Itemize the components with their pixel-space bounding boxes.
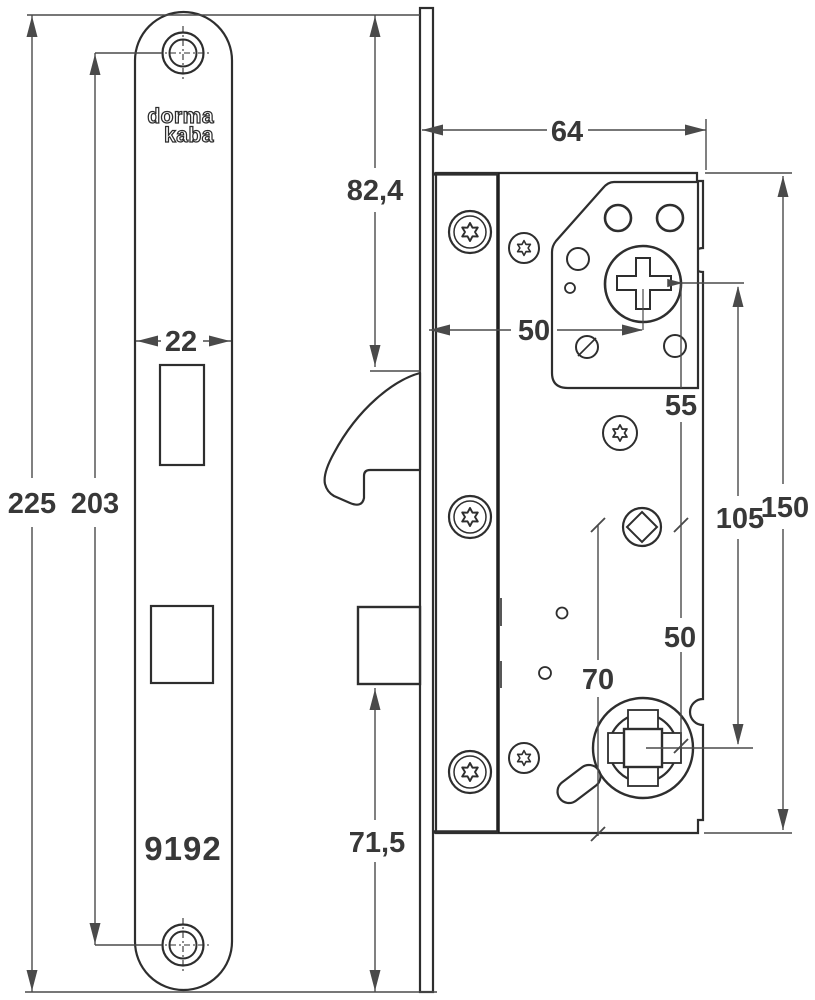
latch-opening bbox=[160, 365, 204, 465]
torx-screw-bottom-small bbox=[509, 743, 539, 773]
torx-screw-top-big bbox=[449, 211, 491, 253]
plate-hole-right bbox=[657, 205, 683, 231]
dim-label-55: 55 bbox=[665, 390, 697, 422]
dim-label-82-4: 82,4 bbox=[347, 175, 403, 207]
arrow-up-icon bbox=[90, 54, 101, 75]
arrow-down-icon bbox=[27, 970, 38, 991]
arrow-down-icon bbox=[733, 724, 744, 745]
arrow-down-icon bbox=[778, 809, 789, 830]
arrow-up-icon bbox=[733, 286, 744, 307]
dim-label-50-vertical: 50 bbox=[664, 622, 696, 654]
plate-hole-bottom-right bbox=[664, 335, 686, 357]
arrow-up-icon bbox=[370, 16, 381, 37]
aux-spindle-hole bbox=[623, 508, 661, 546]
arrow-up-icon bbox=[27, 16, 38, 37]
torx-screw-bottom-big bbox=[449, 751, 491, 793]
torx-screw-center bbox=[603, 416, 637, 450]
model-number: 9192 bbox=[144, 830, 221, 867]
torx-screw-middle-big bbox=[449, 496, 491, 538]
dim-label-150: 150 bbox=[761, 492, 809, 524]
brand-logo-line2: kaba bbox=[164, 124, 214, 147]
faceplate: dorma kaba 9192 bbox=[135, 12, 232, 990]
arrow-up-icon bbox=[370, 689, 381, 710]
arrow-down-icon bbox=[370, 345, 381, 366]
arrow-down-icon bbox=[370, 970, 381, 991]
dim-label-71-5: 71,5 bbox=[349, 827, 405, 859]
deadbolt bbox=[358, 607, 420, 684]
case-hole-small-lower bbox=[539, 667, 551, 679]
dim-label-203: 203 bbox=[71, 488, 119, 520]
dim-label-105: 105 bbox=[716, 503, 764, 535]
dim-label-22: 22 bbox=[165, 326, 197, 358]
arrow-right-icon bbox=[685, 125, 706, 136]
plate-hole-left bbox=[605, 205, 631, 231]
arrow-up-icon bbox=[778, 176, 789, 197]
plate-hole-medium bbox=[567, 248, 589, 270]
arrow-down-icon bbox=[90, 923, 101, 944]
case-hole-small-upper bbox=[557, 608, 568, 619]
plate-hole-small bbox=[565, 283, 575, 293]
dim-label-225: 225 bbox=[8, 488, 56, 520]
forend-strip bbox=[420, 8, 433, 992]
drawing-svg: dorma kaba 9192 bbox=[0, 0, 815, 1000]
torx-screw-top-small bbox=[509, 233, 539, 263]
lock-technical-drawing: dorma kaba 9192 bbox=[0, 0, 815, 1000]
dim-label-70: 70 bbox=[582, 664, 614, 696]
latch-bolt bbox=[325, 373, 420, 505]
dim-label-64: 64 bbox=[551, 116, 583, 148]
dim-label-backset-50: 50 bbox=[518, 315, 550, 347]
deadbolt-opening bbox=[151, 606, 213, 683]
lock-case bbox=[434, 173, 703, 833]
